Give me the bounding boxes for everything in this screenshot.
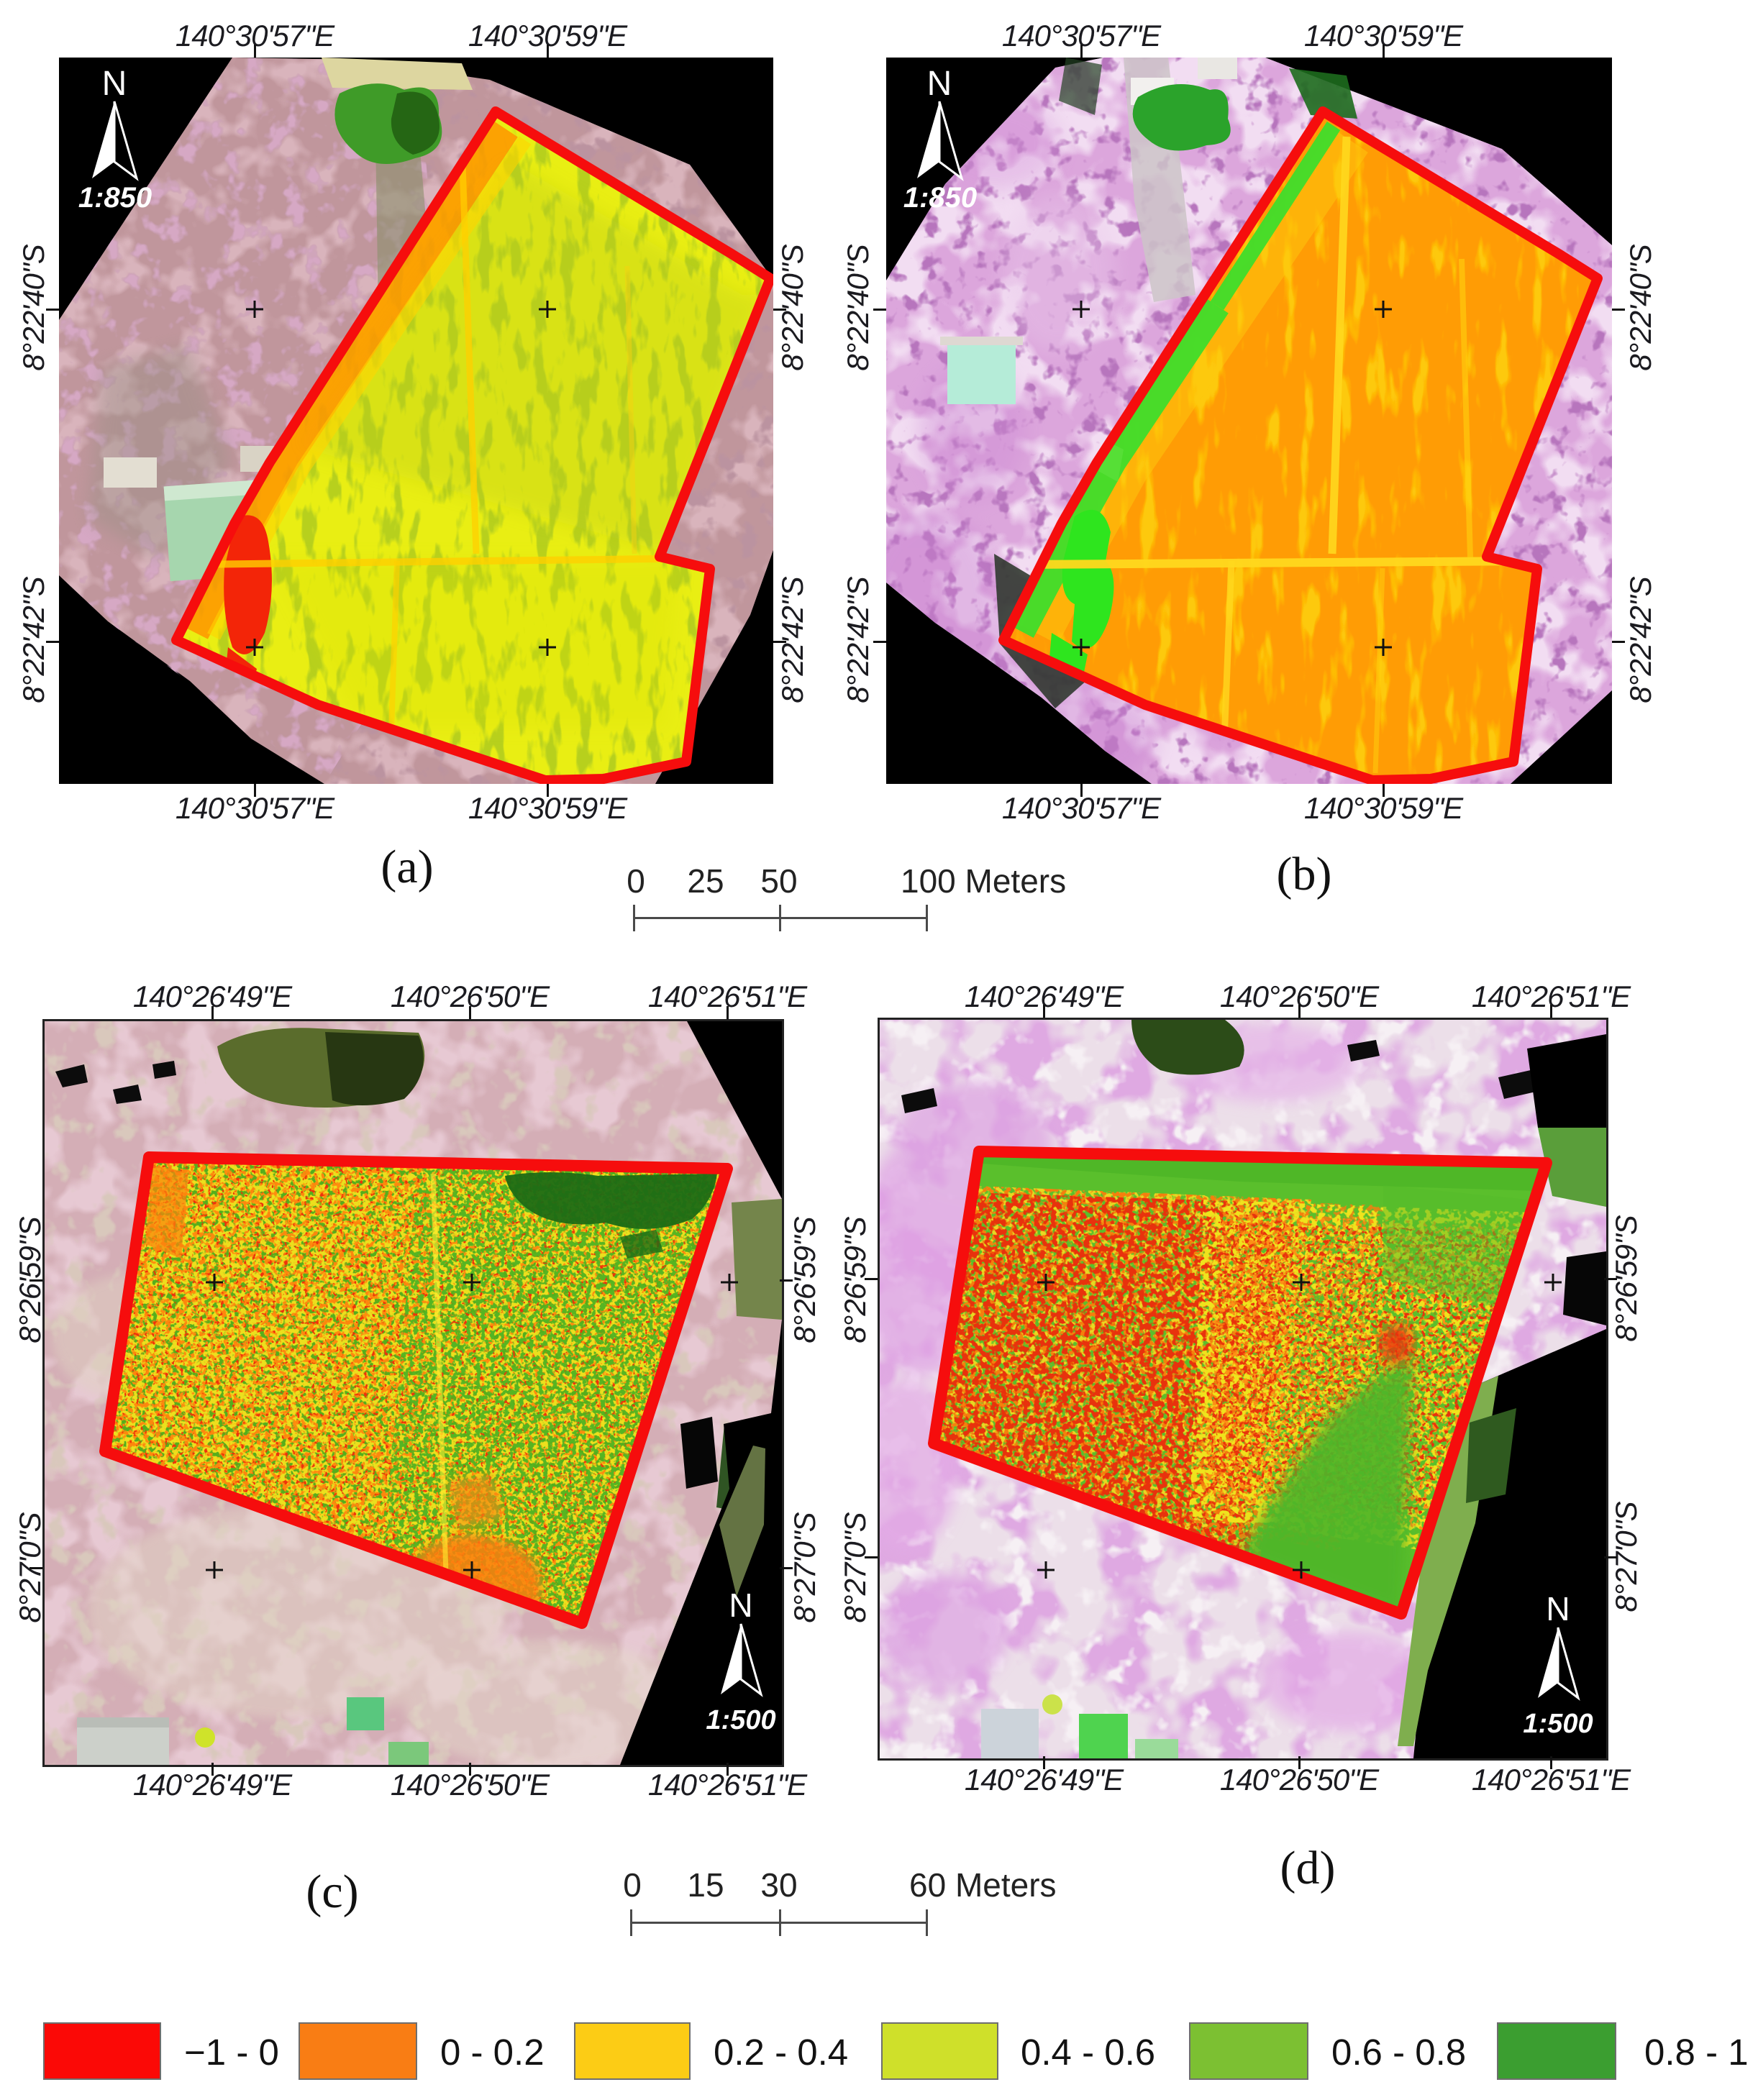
svg-text:1:500: 1:500 <box>1523 1709 1593 1739</box>
svg-text:1:850: 1:850 <box>78 182 152 214</box>
svg-text:1:850: 1:850 <box>903 182 977 214</box>
svg-text:N: N <box>729 1587 752 1624</box>
svg-text:N: N <box>927 65 952 103</box>
svg-text:N: N <box>102 65 127 103</box>
svg-text:1:500: 1:500 <box>706 1705 775 1735</box>
svg-text:N: N <box>1546 1590 1570 1627</box>
